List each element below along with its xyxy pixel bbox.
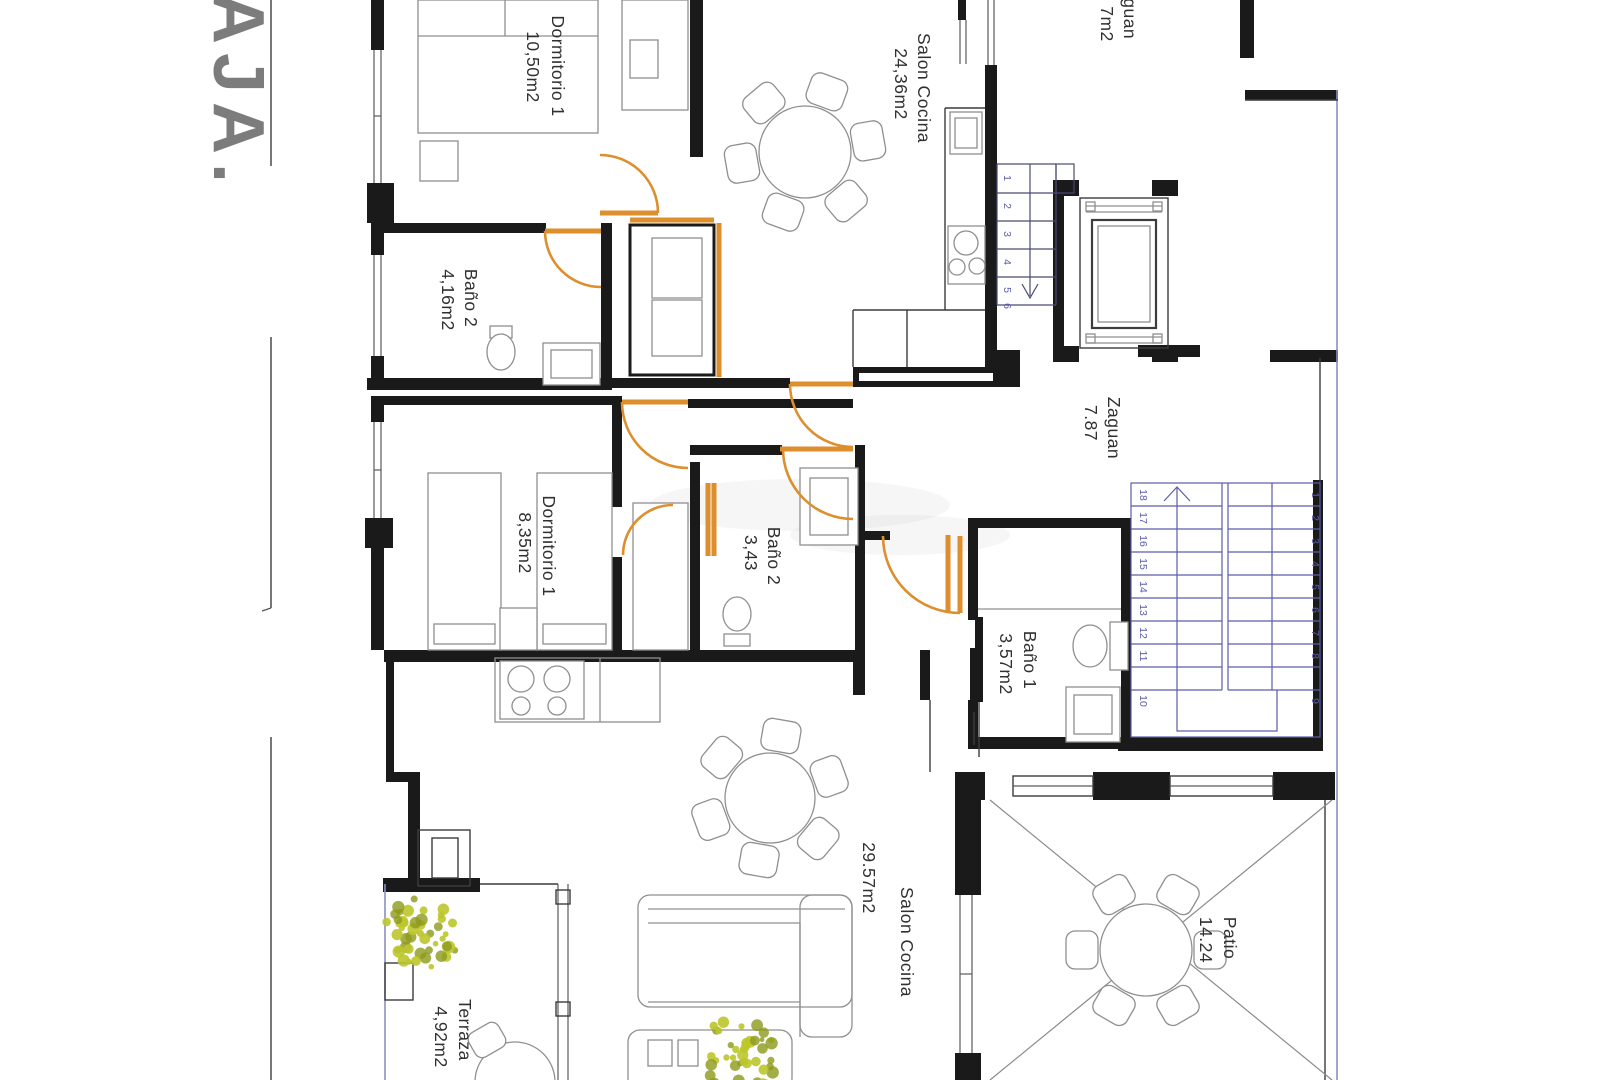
plant-foliage — [406, 959, 412, 965]
shower-b — [800, 468, 858, 545]
plant-foliage — [425, 946, 433, 954]
staircase-lower — [1131, 483, 1320, 737]
label-bano2-a-name: Baño 2 — [461, 269, 481, 327]
plant-foliage — [741, 1041, 750, 1050]
plant-foliage — [740, 1058, 748, 1066]
plant-foliage — [420, 906, 428, 914]
plant-foliage — [436, 950, 448, 962]
stair-step-number: 14 — [1137, 581, 1149, 593]
plant-foliage — [443, 931, 449, 937]
stair-step-number: 5 — [1001, 287, 1013, 293]
elevator-car — [1092, 220, 1156, 328]
plant-foliage — [765, 1037, 777, 1049]
stair-step-number: 10 — [1137, 695, 1149, 707]
stair-step-number: 9 — [1309, 698, 1321, 704]
stair-step-number: 15 — [1137, 558, 1149, 570]
label-salon-b-name: Salon Cocina — [897, 887, 917, 997]
label-bano2-b-area: 3,43 — [741, 535, 761, 571]
plant-foliage — [442, 941, 452, 951]
label-zaguan-top-name: Zaguan — [1120, 0, 1140, 39]
plant-foliage — [382, 918, 391, 927]
label-salon-a-area: 24,36m2 — [891, 48, 911, 120]
plant-foliage — [733, 1075, 745, 1080]
cooktop-a — [948, 226, 985, 284]
label-zaguan-mid-area: 7.87 — [1081, 405, 1101, 441]
plant-foliage — [448, 919, 457, 928]
stair-step-number: 5 — [1309, 584, 1321, 590]
plant-foliage — [759, 1027, 769, 1037]
wardrobe-top-a — [622, 0, 688, 110]
label-dormitorio1-a-area: 10,50m2 — [523, 31, 543, 103]
stair-step-number: 2 — [1001, 203, 1013, 209]
floor-plan-canvas: AJA. — [0, 0, 1620, 1080]
stair-step-number: 2 — [1309, 515, 1321, 521]
stair-step-number: 6 — [1309, 607, 1321, 613]
kitchen-counter-b — [495, 658, 660, 722]
plant-foliage — [710, 1022, 718, 1030]
bed-double-a — [418, 0, 598, 133]
nightstand-a — [420, 141, 458, 181]
terraza-column — [385, 963, 413, 1000]
plant-foliage — [390, 909, 400, 919]
plant-foliage — [438, 915, 446, 923]
stair-step-number: 17 — [1137, 512, 1149, 524]
sink-a — [543, 343, 600, 385]
plant-foliage — [718, 1017, 729, 1028]
terraza-table — [465, 1019, 555, 1080]
door-entry-a — [790, 384, 853, 447]
plant-foliage — [429, 964, 435, 970]
plan-title: AJA. — [198, 0, 278, 192]
chair — [759, 717, 802, 755]
stair-step-number: 7 — [1309, 630, 1321, 636]
chair — [723, 142, 761, 185]
toilet-a — [487, 326, 515, 370]
label-dormitorio1-b-name: Dormitorio 1 — [539, 495, 559, 596]
plant-foliage — [434, 922, 443, 931]
patio-table — [1100, 904, 1192, 996]
stair-step-number: 3 — [1001, 231, 1013, 237]
label-zaguan-top-area: 7m2 — [1097, 6, 1117, 42]
stair-step-number: 18 — [1137, 489, 1149, 501]
plant-foliage — [416, 914, 428, 926]
toilet-b1 — [1073, 622, 1128, 670]
label-bano1-b-area: 3,57m2 — [996, 633, 1016, 694]
door-bath-a — [545, 231, 601, 287]
plant-foliage — [728, 1042, 734, 1048]
window-patio-left — [960, 895, 972, 1053]
door-hall-b-left — [622, 402, 688, 468]
stair-step-number: 12 — [1137, 627, 1149, 639]
label-terraza-name: Terraza — [455, 999, 475, 1061]
dining-table-b — [725, 753, 815, 843]
plant-foliage — [411, 896, 418, 903]
stair-step-number: 1 — [1309, 492, 1321, 498]
label-patio-name: Patio — [1220, 917, 1240, 959]
plant-foliage — [420, 952, 431, 963]
stair-step-number: 8 — [1309, 653, 1321, 659]
toilet-b2 — [723, 597, 751, 646]
stair-step-number: 16 — [1137, 535, 1149, 547]
upper-stair-numbers: 123456 — [1001, 175, 1013, 309]
plant-foliage — [750, 1036, 760, 1046]
kitchen-sink-a — [950, 112, 982, 154]
chair — [849, 119, 887, 162]
label-patio-area: 14.24 — [1196, 917, 1216, 963]
elevator — [1080, 198, 1168, 348]
plant-foliage — [411, 956, 421, 966]
plant-foliage — [404, 944, 414, 954]
plant-foliage — [738, 1023, 744, 1029]
window-west-bath-a — [374, 255, 381, 356]
plant-foliage — [767, 1057, 774, 1064]
label-salon-b-area: 29.57m2 — [859, 842, 879, 914]
plant-foliage — [759, 1065, 769, 1075]
stair-step-number: 6 — [1001, 303, 1013, 309]
dining-table-a — [759, 106, 851, 198]
margin-area: AJA. — [198, 0, 278, 1080]
label-salon-a-name: Salon Cocina — [914, 33, 934, 143]
plant-foliage — [723, 1054, 729, 1060]
plant-foliage — [760, 1037, 765, 1042]
door-bedroom-a — [600, 155, 658, 213]
stair-step-number: 4 — [1001, 259, 1013, 265]
plant-foliage — [751, 1057, 761, 1067]
hall-wardrobe — [630, 220, 719, 377]
label-bano1-b-name: Baño 1 — [1020, 631, 1040, 689]
label-zaguan-mid-name: Zaguan — [1104, 397, 1124, 459]
window-west-a — [374, 50, 381, 183]
chair — [738, 841, 781, 879]
stair-step-number: 11 — [1137, 651, 1149, 662]
chair — [1066, 931, 1098, 969]
window-west-b — [374, 422, 381, 518]
plant-foliage — [705, 1059, 717, 1071]
label-bano2-b-name: Baño 2 — [764, 527, 784, 585]
sofa-b — [638, 895, 852, 1037]
label-bano2-a-area: 4,16m2 — [438, 269, 458, 330]
label-terraza-area: 4,92m2 — [431, 1006, 451, 1067]
stair-step-number: 1 — [1001, 175, 1013, 181]
stair-step-number: 4 — [1309, 561, 1321, 567]
stair-step-number: 3 — [1309, 538, 1321, 544]
plant-foliage — [730, 1055, 736, 1061]
plant-foliage — [433, 941, 439, 947]
label-dormitorio1-b-area: 8,35m2 — [515, 512, 535, 573]
window-terraza-partition — [556, 884, 570, 1080]
sink-b1 — [1066, 687, 1120, 742]
plant-foliage — [399, 925, 405, 931]
stair-step-number: 13 — [1137, 604, 1149, 616]
label-dormitorio1-a-name: Dormitorio 1 — [548, 15, 568, 116]
